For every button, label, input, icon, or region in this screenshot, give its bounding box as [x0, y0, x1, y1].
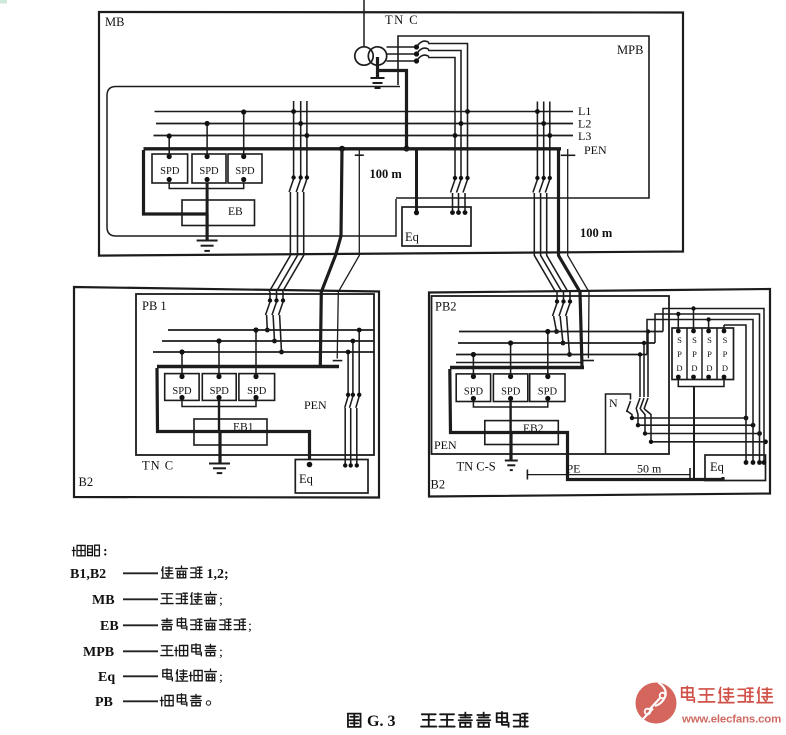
svg-text:MB: MB	[105, 15, 124, 29]
svg-text:PEN: PEN	[304, 398, 327, 412]
svg-text:EB: EB	[100, 619, 119, 634]
svg-text:;: ;	[219, 670, 223, 685]
svg-text:SPD: SPD	[501, 387, 521, 398]
svg-text:SPD: SPD	[538, 387, 558, 398]
svg-text:SPD: SPD	[160, 166, 180, 177]
svg-text:EB: EB	[228, 206, 243, 218]
svg-text:PB2: PB2	[435, 300, 457, 314]
svg-text:SPD: SPD	[199, 166, 219, 177]
svg-text:B2: B2	[431, 478, 446, 492]
svg-text:Eq: Eq	[710, 460, 725, 474]
svg-text::: :	[103, 545, 108, 560]
svg-text:MPB: MPB	[617, 43, 643, 57]
svg-text:TN C: TN C	[385, 13, 419, 27]
svg-text:1,2;: 1,2;	[207, 567, 229, 582]
svg-text:G. 3: G. 3	[367, 713, 395, 730]
svg-text:P: P	[707, 349, 712, 359]
svg-text:N: N	[609, 396, 618, 410]
svg-text:B2: B2	[79, 475, 94, 489]
svg-text:100 m: 100 m	[580, 226, 613, 240]
svg-text:SPD: SPD	[235, 166, 255, 177]
svg-text:PB 1: PB 1	[142, 299, 167, 313]
svg-text:;: ;	[219, 645, 223, 660]
svg-text:TN C: TN C	[142, 459, 174, 473]
svg-text:MPB: MPB	[83, 645, 114, 660]
svg-text:EB1: EB1	[233, 422, 254, 434]
svg-text:P: P	[692, 349, 697, 359]
svg-text:PEN: PEN	[584, 143, 607, 157]
svg-text:S: S	[677, 335, 682, 345]
svg-text:D: D	[676, 363, 682, 373]
svg-text:TN C-S: TN C-S	[457, 460, 496, 474]
svg-text:S: S	[723, 335, 728, 345]
svg-text:www.elecfans.com: www.elecfans.com	[681, 714, 781, 726]
svg-text:PB: PB	[95, 695, 113, 710]
svg-text:P: P	[677, 349, 682, 359]
svg-text:PEN: PEN	[434, 438, 457, 452]
svg-text:EB2: EB2	[523, 423, 544, 435]
svg-text:SPD: SPD	[464, 387, 484, 398]
svg-text:B1,B2: B1,B2	[70, 567, 106, 582]
svg-text:S: S	[707, 335, 712, 345]
svg-text:MB: MB	[92, 593, 115, 608]
svg-text:D: D	[691, 363, 697, 373]
svg-text:Eq: Eq	[299, 472, 314, 486]
svg-text:Eq: Eq	[405, 230, 420, 244]
svg-text:50 m: 50 m	[637, 462, 662, 476]
svg-text:100 m: 100 m	[370, 167, 403, 181]
svg-text:D: D	[706, 363, 712, 373]
svg-text:;: ;	[248, 619, 252, 634]
svg-text:;: ;	[219, 593, 223, 608]
svg-text:PE: PE	[567, 462, 581, 476]
svg-text:Eq: Eq	[98, 670, 115, 685]
svg-text:D: D	[722, 363, 728, 373]
svg-text:L3: L3	[578, 129, 591, 143]
svg-text:S: S	[692, 335, 697, 345]
svg-text:P: P	[723, 349, 728, 359]
